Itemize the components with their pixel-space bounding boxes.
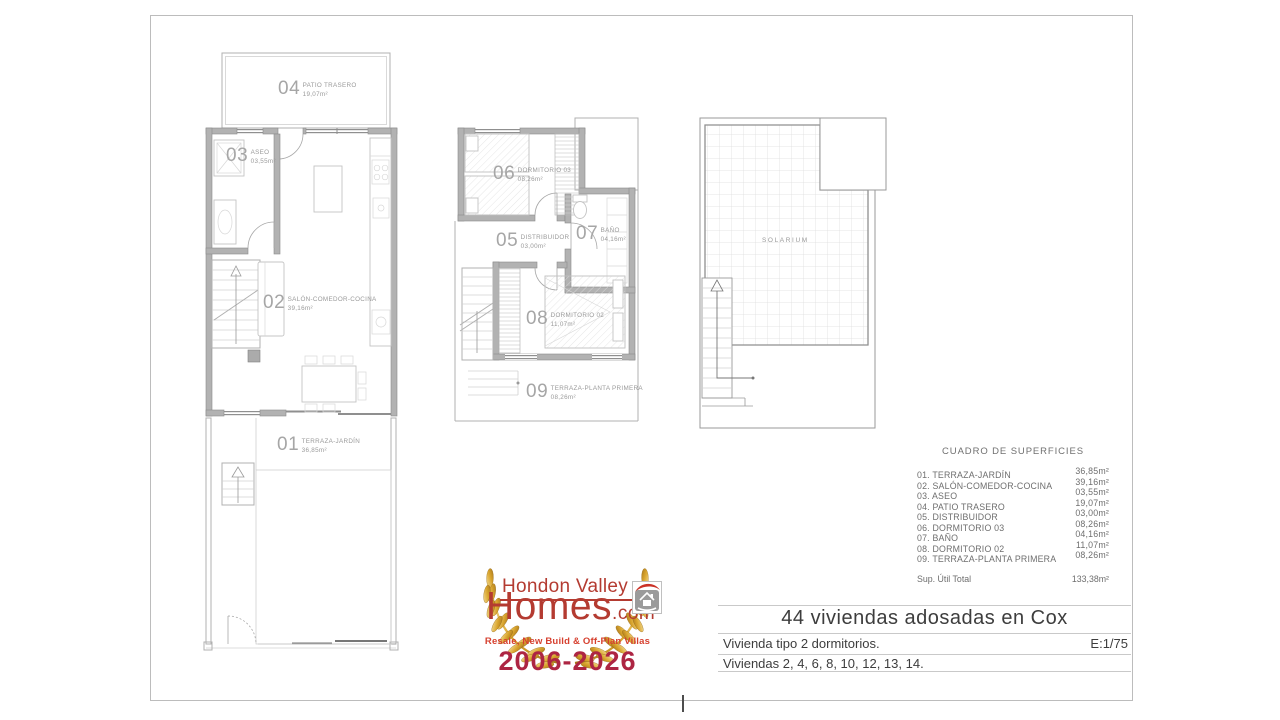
- bedroom3-door: [535, 193, 557, 215]
- surface-table-total: Sup. Útil Total 133,38m²: [917, 574, 1109, 584]
- row-value: 36,85m²: [1075, 466, 1109, 477]
- bottom-center-tick: [682, 695, 684, 712]
- label-salon-comedor-cocina: 02 SALÓN-COMEDOR-COCINA 39,16m²: [263, 294, 377, 313]
- title-block-line: [718, 633, 1131, 634]
- room-area: 04,16m²: [601, 236, 626, 245]
- row-label: 09. TERRAZA-PLANTA PRIMERA: [917, 554, 1056, 565]
- room-name: DORMITORIO 02: [551, 312, 604, 321]
- total-value: 133,38m²: [1072, 574, 1109, 584]
- label-solarium: SOLARIUM: [762, 237, 809, 244]
- label-terraza-jardin: 01 TERRAZA-JARDÍN 36,85m²: [277, 436, 360, 455]
- row-value: 04,16m²: [1075, 529, 1109, 540]
- row-value: 08,26m²: [1075, 519, 1109, 530]
- room-number: 06: [493, 165, 515, 183]
- garden-stairs: [222, 463, 254, 505]
- staircase: [212, 260, 260, 362]
- room-area: 03,00m²: [521, 243, 570, 252]
- room-number: 08: [526, 310, 548, 328]
- room-number: 04: [278, 80, 300, 98]
- room-area: 36,85m²: [302, 447, 360, 456]
- room-area: 39,16m²: [288, 305, 377, 314]
- title-block-line: [718, 605, 1131, 606]
- label-aseo: 03 ASEO 03,55m²: [226, 147, 276, 166]
- row-value: 11,07m²: [1076, 540, 1109, 551]
- table-row: 09. TERRAZA-PLANTA PRIMERA08,26m²: [917, 554, 1109, 565]
- room-number: 03: [226, 147, 248, 165]
- room-info: SALÓN-COMEDOR-COCINA 39,16m²: [288, 294, 377, 313]
- ground-floor-drawing: [202, 48, 402, 658]
- garden-gate-door: [228, 616, 256, 644]
- row-label: 02. SALÓN-COMEDOR-COCINA: [917, 481, 1052, 492]
- row-label: 08. DORMITORIO 02: [917, 544, 1004, 555]
- staircase-first-floor: [460, 268, 496, 360]
- aseo-door: [248, 222, 274, 248]
- row-value: 19,07m²: [1075, 498, 1109, 509]
- row-label: 06. DORMITORIO 03: [917, 523, 1004, 534]
- row-value: 08,26m²: [1075, 550, 1109, 561]
- kitchen-island: [314, 166, 342, 212]
- wardrobe-dorm2: [499, 268, 520, 353]
- room-info: PATIO TRASERO 19,07m²: [303, 80, 357, 99]
- roof-notch: [820, 118, 886, 190]
- room-name: PATIO TRASERO: [303, 82, 357, 91]
- room-number: 05: [496, 232, 518, 250]
- row-value: 03,00m²: [1075, 508, 1109, 519]
- plan-first-floor: [452, 103, 642, 428]
- room-name: TERRAZA-JARDÍN: [302, 438, 360, 447]
- brand-homes: Homes: [486, 587, 612, 626]
- room-info: ASEO 03,55m²: [251, 147, 276, 166]
- label-bano: 07 BAÑO 04,16m²: [576, 225, 626, 244]
- room-name: SALÓN-COMEDOR-COCINA: [288, 296, 377, 305]
- units-list: Viviendas 2, 4, 6, 8, 10, 12, 13, 14.: [723, 656, 1128, 671]
- brand-years: 2006-2026: [450, 646, 685, 677]
- room-number: 09: [526, 383, 548, 401]
- title-block-row: Vivienda tipo 2 dormitorios. E:1/75: [723, 636, 1128, 651]
- room-area: 03,55m²: [251, 158, 276, 167]
- room-info: DORMITORIO 02 11,07m²: [551, 310, 604, 329]
- brand-main-text: Homes.com: [486, 587, 655, 626]
- room-area: 11,07m²: [551, 321, 604, 330]
- label-distribuidor: 05 DISTRIBUIDOR 03,00m²: [496, 232, 569, 251]
- washbasin: [214, 200, 236, 244]
- room-info: DORMITORIO 03 08,26m²: [518, 165, 571, 184]
- first-floor-drawing: [452, 103, 642, 428]
- plan-sheet: { "sheet": { "surface_table": { "title":…: [0, 0, 1280, 720]
- room-area: 08,26m²: [551, 394, 643, 403]
- room-info: DISTRIBUIDOR 03,00m²: [521, 232, 570, 251]
- entry-door: [278, 134, 303, 159]
- room-number: 02: [263, 294, 285, 312]
- row-label: 07. BAÑO: [917, 533, 958, 544]
- title-block-line: [718, 671, 1131, 672]
- room-info: TERRAZA-PLANTA PRIMERA 08,26m²: [551, 383, 643, 402]
- room-area: 08,26m²: [518, 176, 571, 185]
- dwelling-type: Vivienda tipo 2 dormitorios.: [723, 636, 880, 651]
- kitchen-counter: [370, 138, 391, 346]
- surface-table-rows: 01. TERRAZA-JARDÍN36,85m² 02. SALÓN-COME…: [917, 470, 1109, 565]
- room-name: DISTRIBUIDOR: [521, 234, 570, 243]
- hondon-valley-homes-logo: Hondon Valley Homes.com Resale, New Buil…: [450, 545, 685, 677]
- surface-table: CUADRO DE SUPERFICIES 01. TERRAZA-JARDÍN…: [917, 446, 1109, 584]
- plan-roof-solarium: [695, 110, 890, 430]
- row-value: 03,55m²: [1075, 487, 1109, 498]
- drawing-scale: E:1/75: [1090, 636, 1128, 651]
- room-name: BAÑO: [601, 227, 626, 236]
- row-label: 05. DISTRIBUIDOR: [917, 512, 998, 523]
- row-label: 04. PATIO TRASERO: [917, 502, 1005, 513]
- room-name: ASEO: [251, 149, 276, 158]
- room-info: TERRAZA-JARDÍN 36,85m²: [302, 436, 360, 455]
- room-info: BAÑO 04,16m²: [601, 225, 626, 244]
- row-label: 03. ASEO: [917, 491, 957, 502]
- row-label: 01. TERRAZA-JARDÍN: [917, 470, 1011, 481]
- room-number: 07: [576, 225, 598, 243]
- room-name: TERRAZA-PLANTA PRIMERA: [551, 385, 643, 394]
- dining-table: [302, 356, 366, 412]
- roof-drawing: [695, 110, 890, 430]
- plan-ground-floor: [202, 48, 402, 658]
- label-terraza-planta-primera: 09 TERRAZA-PLANTA PRIMERA 08,26m²: [526, 383, 643, 402]
- house-icon: [632, 581, 662, 619]
- total-label: Sup. Útil Total: [917, 574, 971, 584]
- title-block-line: [718, 654, 1131, 655]
- room-area: 19,07m²: [303, 91, 357, 100]
- label-dormitorio-02: 08 DORMITORIO 02 11,07m²: [526, 310, 604, 329]
- label-patio-trasero: 04 PATIO TRASERO 19,07m²: [278, 80, 357, 99]
- room-name: DORMITORIO 03: [518, 167, 571, 176]
- row-value: 39,16m²: [1075, 477, 1109, 488]
- project-title: 44 viviendas adosadas en Cox: [718, 607, 1131, 630]
- label-dormitorio-03: 06 DORMITORIO 03 08,26m²: [493, 165, 571, 184]
- toilet: [573, 195, 587, 219]
- surface-table-title: CUADRO DE SUPERFICIES: [917, 446, 1109, 457]
- room-number: 01: [277, 436, 299, 454]
